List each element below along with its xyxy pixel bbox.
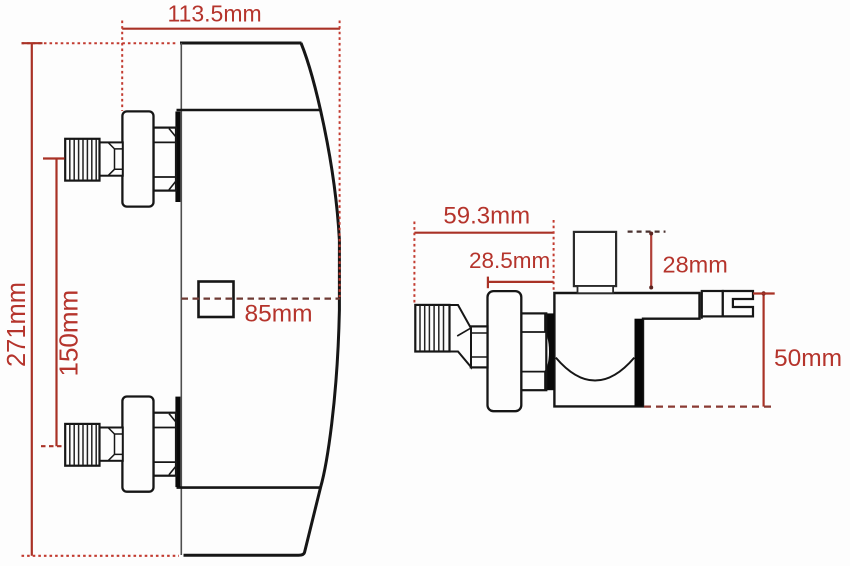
svg-text:113.5mm: 113.5mm [168, 1, 262, 27]
svg-text:28mm: 28mm [663, 252, 728, 278]
svg-text:50mm: 50mm [774, 345, 842, 372]
svg-text:85mm: 85mm [245, 301, 313, 328]
svg-text:59.3mm: 59.3mm [443, 203, 530, 230]
svg-text:28.5mm: 28.5mm [469, 248, 550, 273]
svg-text:150mm: 150mm [53, 290, 83, 377]
svg-text:271mm: 271mm [3, 282, 31, 367]
